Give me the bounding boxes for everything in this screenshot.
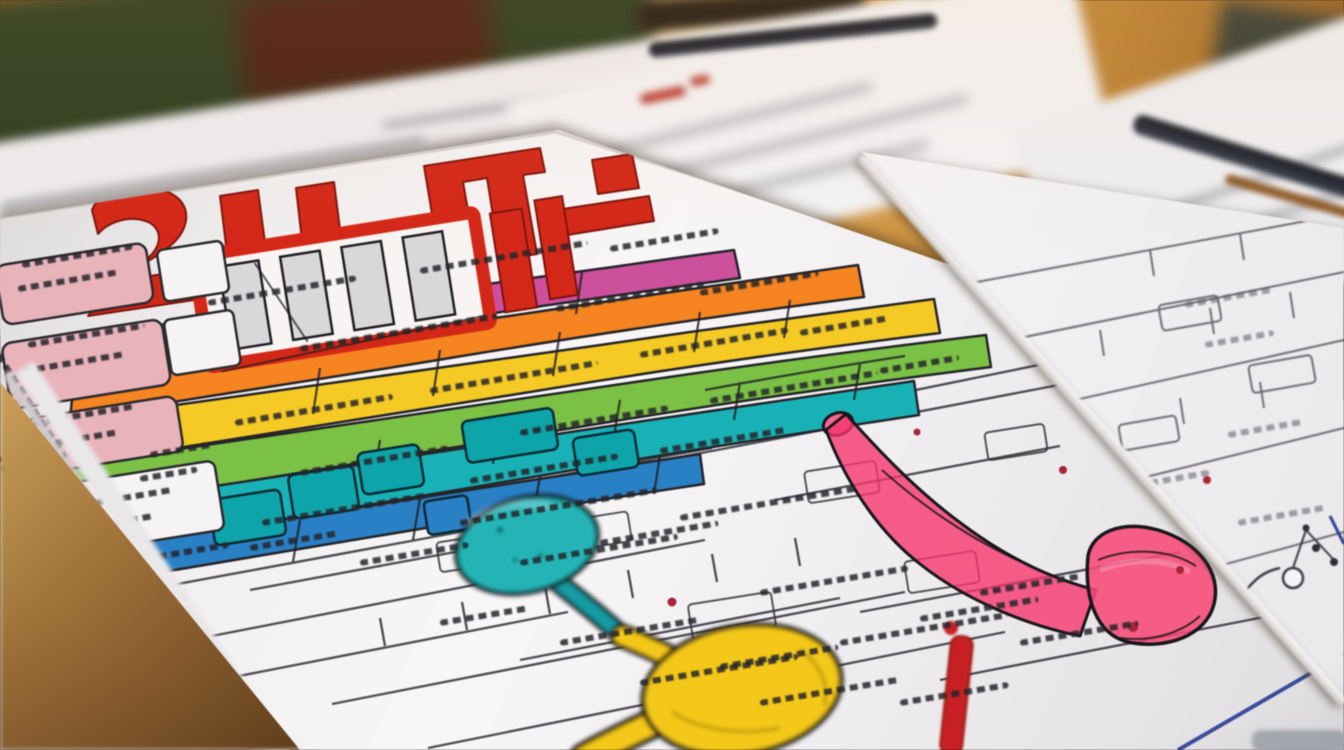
handwriting-scribble xyxy=(1237,505,1325,526)
handwriting-scribble xyxy=(1204,330,1274,348)
handwriting-scribble xyxy=(1141,647,1237,670)
photo-content xyxy=(0,0,1344,750)
gray-object-bottom-right xyxy=(1252,730,1344,750)
handwriting-scribble xyxy=(1091,622,1206,648)
handwriting-scribble xyxy=(1149,470,1209,486)
handwriting-scribble xyxy=(1184,287,1272,308)
handwriting-scribble xyxy=(1227,419,1305,438)
photo-stage xyxy=(0,0,1344,750)
